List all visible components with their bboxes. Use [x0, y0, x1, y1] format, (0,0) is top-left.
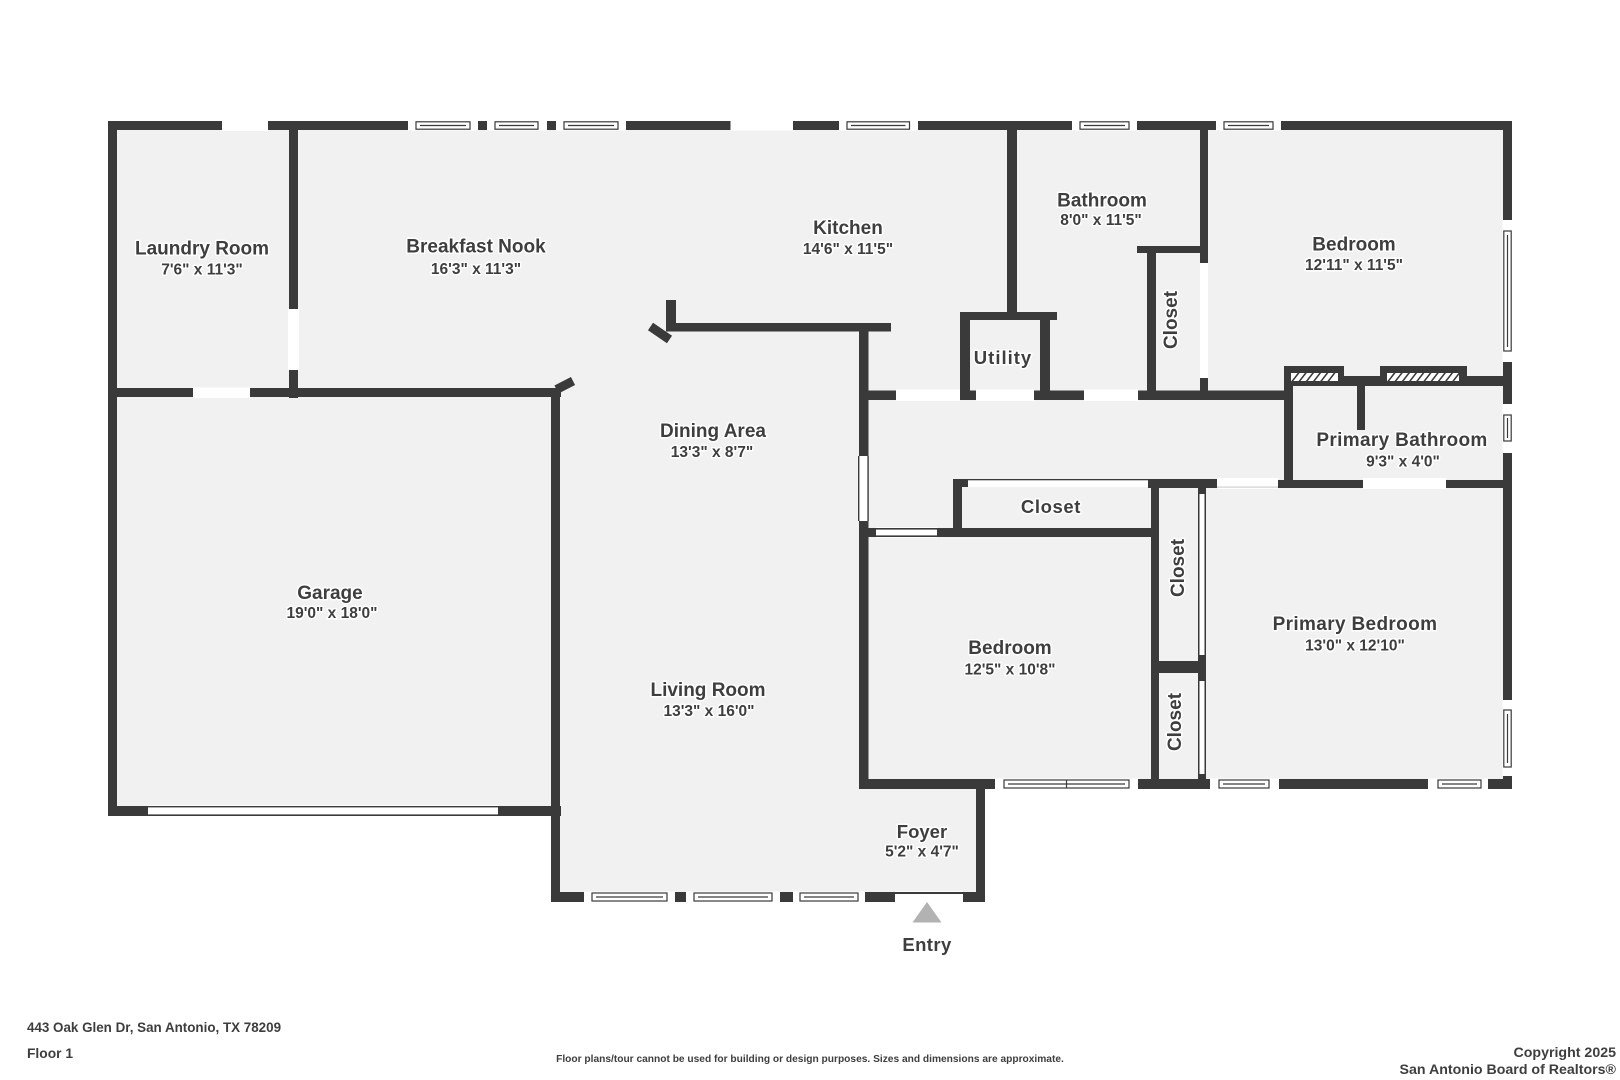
- svg-text:Living Room: Living Room: [650, 680, 765, 701]
- svg-text:Closet: Closet: [1168, 538, 1189, 597]
- svg-text:16'3" x 11'3": 16'3" x 11'3": [431, 261, 521, 278]
- svg-text:5'2" x 4'7": 5'2" x 4'7": [885, 844, 959, 861]
- svg-text:Primary Bathroom: Primary Bathroom: [1316, 430, 1487, 451]
- svg-text:7'6" x 11'3": 7'6" x 11'3": [161, 262, 243, 279]
- svg-text:Closet: Closet: [1161, 290, 1182, 349]
- svg-text:8'0" x 11'5": 8'0" x 11'5": [1060, 212, 1142, 229]
- svg-text:Bedroom: Bedroom: [968, 638, 1051, 659]
- svg-text:Garage: Garage: [297, 583, 362, 604]
- svg-text:Kitchen: Kitchen: [813, 218, 883, 239]
- svg-text:Bathroom: Bathroom: [1057, 191, 1147, 212]
- svg-text:Closet: Closet: [1165, 692, 1186, 751]
- svg-text:14'6" x 11'5": 14'6" x 11'5": [803, 241, 893, 258]
- svg-text:Floor plans/tour cannot be use: Floor plans/tour cannot be used for buil…: [556, 1054, 1064, 1065]
- svg-text:13'3" x 16'0": 13'3" x 16'0": [663, 703, 754, 720]
- svg-text:12'5" x 10'8": 12'5" x 10'8": [964, 662, 1055, 679]
- svg-text:Bedroom: Bedroom: [1312, 235, 1395, 256]
- svg-text:Breakfast Nook: Breakfast Nook: [406, 237, 546, 258]
- svg-text:Laundry Room: Laundry Room: [135, 239, 269, 260]
- svg-text:13'0" x 12'10": 13'0" x 12'10": [1305, 638, 1405, 655]
- svg-text:Utility: Utility: [974, 347, 1032, 368]
- svg-text:San Antonio Board of Realtors®: San Antonio Board of Realtors®: [1400, 1062, 1617, 1078]
- svg-text:443 Oak Glen Dr, San Antonio,: 443 Oak Glen Dr, San Antonio, TX 78209: [27, 1020, 281, 1035]
- svg-text:12'11" x 11'5": 12'11" x 11'5": [1305, 257, 1403, 274]
- svg-text:Entry: Entry: [902, 934, 952, 955]
- svg-text:Copyright 2025: Copyright 2025: [1514, 1045, 1617, 1061]
- svg-text:9'3" x 4'0": 9'3" x 4'0": [1366, 454, 1440, 471]
- svg-text:Primary Bedroom: Primary Bedroom: [1273, 614, 1438, 635]
- svg-text:Dining Area: Dining Area: [660, 421, 766, 442]
- svg-text:Closet: Closet: [1021, 496, 1081, 517]
- svg-text:Foyer: Foyer: [897, 821, 947, 842]
- svg-text:13'3" x 8'7": 13'3" x 8'7": [671, 444, 753, 461]
- svg-text:19'0" x 18'0": 19'0" x 18'0": [286, 605, 377, 622]
- svg-text:Floor 1: Floor 1: [27, 1046, 73, 1061]
